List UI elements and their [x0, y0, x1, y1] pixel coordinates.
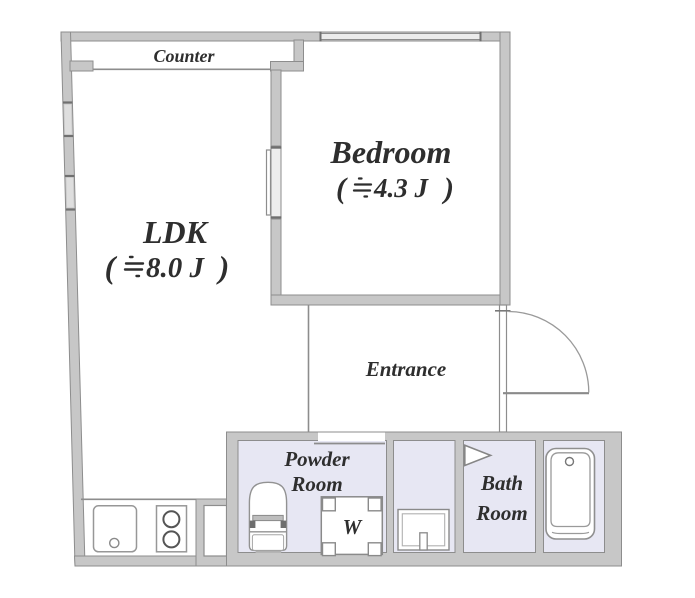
svg-text:Counter: Counter [153, 46, 215, 66]
svg-text:Powder: Powder [283, 447, 350, 471]
svg-text:Room: Room [475, 501, 527, 525]
svg-text:LDK: LDK [142, 214, 210, 250]
svg-text:Bedroom: Bedroom [330, 134, 452, 170]
svg-text:): ) [216, 249, 230, 285]
svg-text:4.3 J: 4.3 J [373, 173, 430, 203]
svg-text:W: W [343, 515, 363, 539]
svg-text:Entrance: Entrance [365, 357, 447, 381]
svg-text:Room: Room [290, 472, 342, 496]
svg-text:Bath: Bath [480, 471, 523, 495]
svg-text:8.0 J: 8.0 J [146, 252, 206, 284]
